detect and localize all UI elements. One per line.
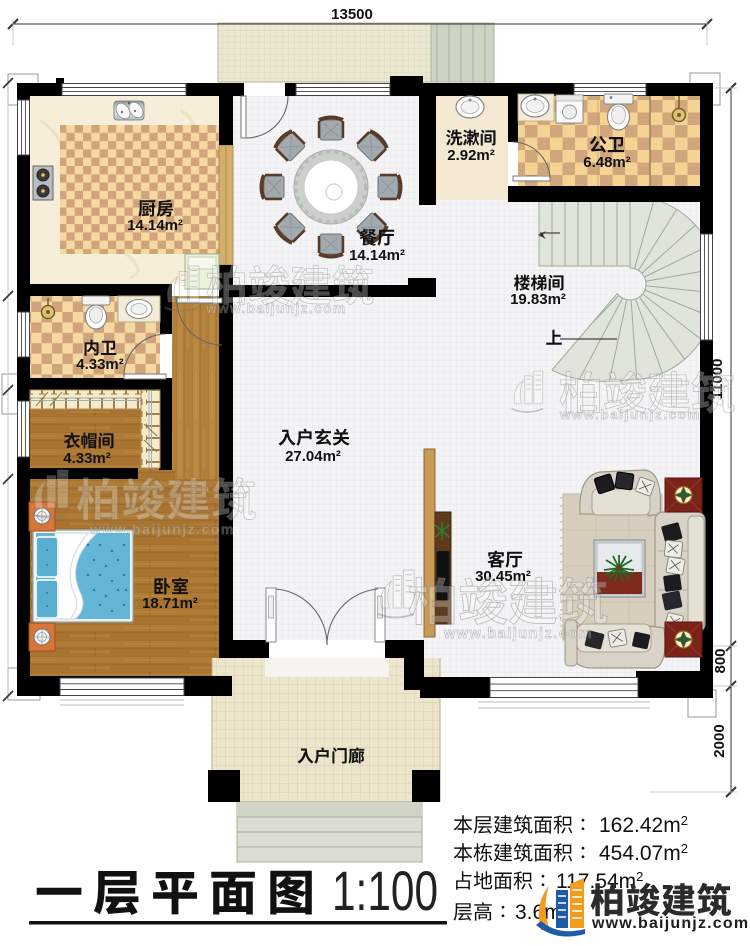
svg-text:800: 800 — [712, 648, 729, 673]
svg-text:2.92m²: 2.92m² — [447, 147, 495, 164]
svg-text:2000: 2000 — [711, 724, 728, 757]
svg-text:6.48m²: 6.48m² — [583, 154, 631, 171]
svg-text:27.04m²: 27.04m² — [285, 448, 341, 465]
svg-text:1:100: 1:100 — [332, 859, 438, 922]
svg-text:www.baijunjz.com: www.baijunjz.com — [89, 521, 235, 537]
svg-text:14.14m²: 14.14m² — [349, 247, 405, 264]
svg-text:454.07m2: 454.07m2 — [599, 841, 688, 865]
svg-text:4.33m²: 4.33m² — [76, 356, 124, 373]
svg-text:www.baijunjz.com: www.baijunjz.com — [205, 301, 347, 316]
svg-text:18.71m²: 18.71m² — [142, 595, 198, 612]
svg-text:19.83m²: 19.83m² — [510, 291, 566, 308]
svg-text:4.33m²: 4.33m² — [63, 450, 111, 467]
svg-text:3.6m: 3.6m — [515, 901, 562, 924]
svg-text:13500: 13500 — [331, 6, 373, 23]
svg-text:14.14m²: 14.14m² — [127, 217, 183, 234]
svg-text:www.baijunjz.com: www.baijunjz.com — [443, 626, 593, 642]
svg-text:www.baijunjz.com: www.baijunjz.com — [559, 407, 701, 422]
svg-text:162.42m2: 162.42m2 — [599, 813, 688, 837]
svg-text:www.baijunjz.com: www.baijunjz.com — [591, 915, 749, 932]
